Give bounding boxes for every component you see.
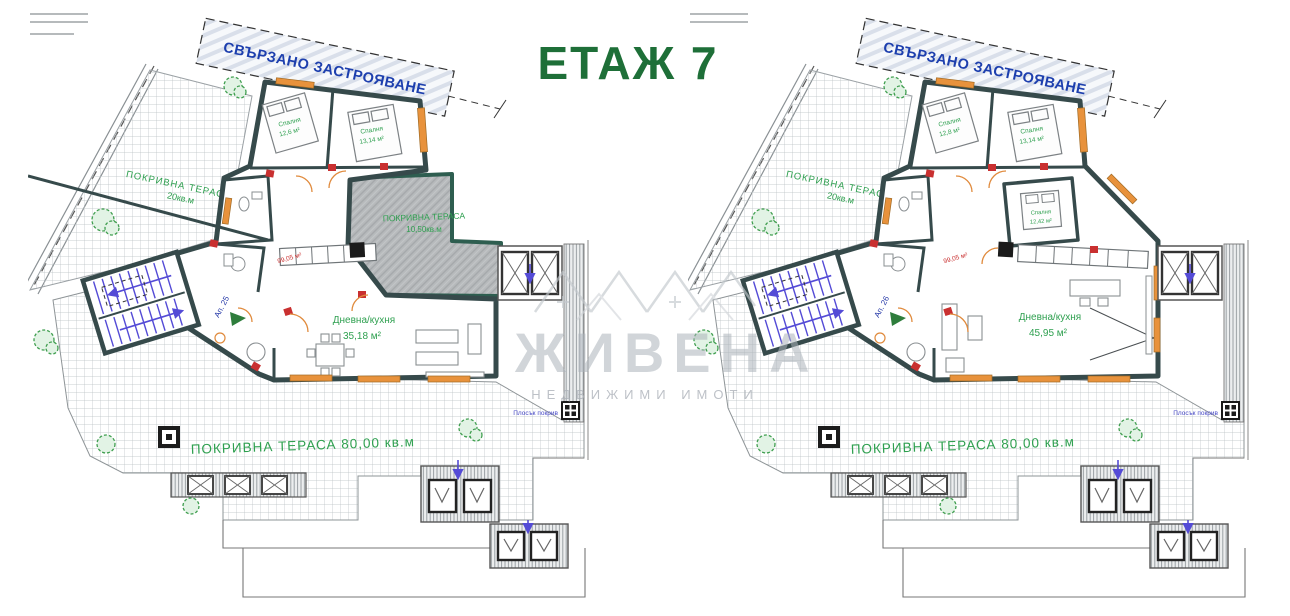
skylight-icon (562, 402, 579, 419)
vent-strip-left (831, 473, 966, 497)
wardrobe-strip (1146, 276, 1152, 354)
stove-icon (349, 242, 365, 258)
flat-roof-label: Плосък покрив (1173, 410, 1218, 417)
vent-block-2 (490, 520, 568, 568)
terrace-covered-area: 10,50кв.м (406, 225, 442, 234)
bedroom-3: Спалня 12,42 м² (1004, 178, 1078, 246)
skylight-icon (1222, 402, 1239, 419)
living-area: 45,95 м² (1029, 328, 1068, 339)
living-label: Дневна/кухня (1019, 312, 1081, 323)
floor-plan-left: ПОКРИВНА ТЕРАСА 20кв.м ПОКРИВНА ТЕРАСА 8… (28, 8, 603, 608)
living-area: 35,18 м² (343, 331, 382, 342)
living-label: Дневна/кухня (333, 315, 395, 326)
vent-block-1 (421, 460, 499, 522)
page-title: ЕТАЖ 7 (528, 36, 728, 90)
stove-icon (998, 242, 1014, 258)
vent-strip-left (171, 473, 306, 497)
vent-block-1 (1081, 460, 1159, 522)
vent-block-2 (1150, 520, 1228, 568)
shaft-strip (564, 244, 584, 422)
flat-roof-label: Плосък покрив (513, 410, 558, 417)
floor-plan-right: ПОКРИВНА ТЕРАСА 20кв.м ПОКРИВНА ТЕРАСА 8… (688, 8, 1263, 608)
floor-plan-sheet: ПОКРИВНА ТЕРАСА 20кв.м ПОКРИВНА ТЕРАСА 8… (0, 0, 1290, 616)
